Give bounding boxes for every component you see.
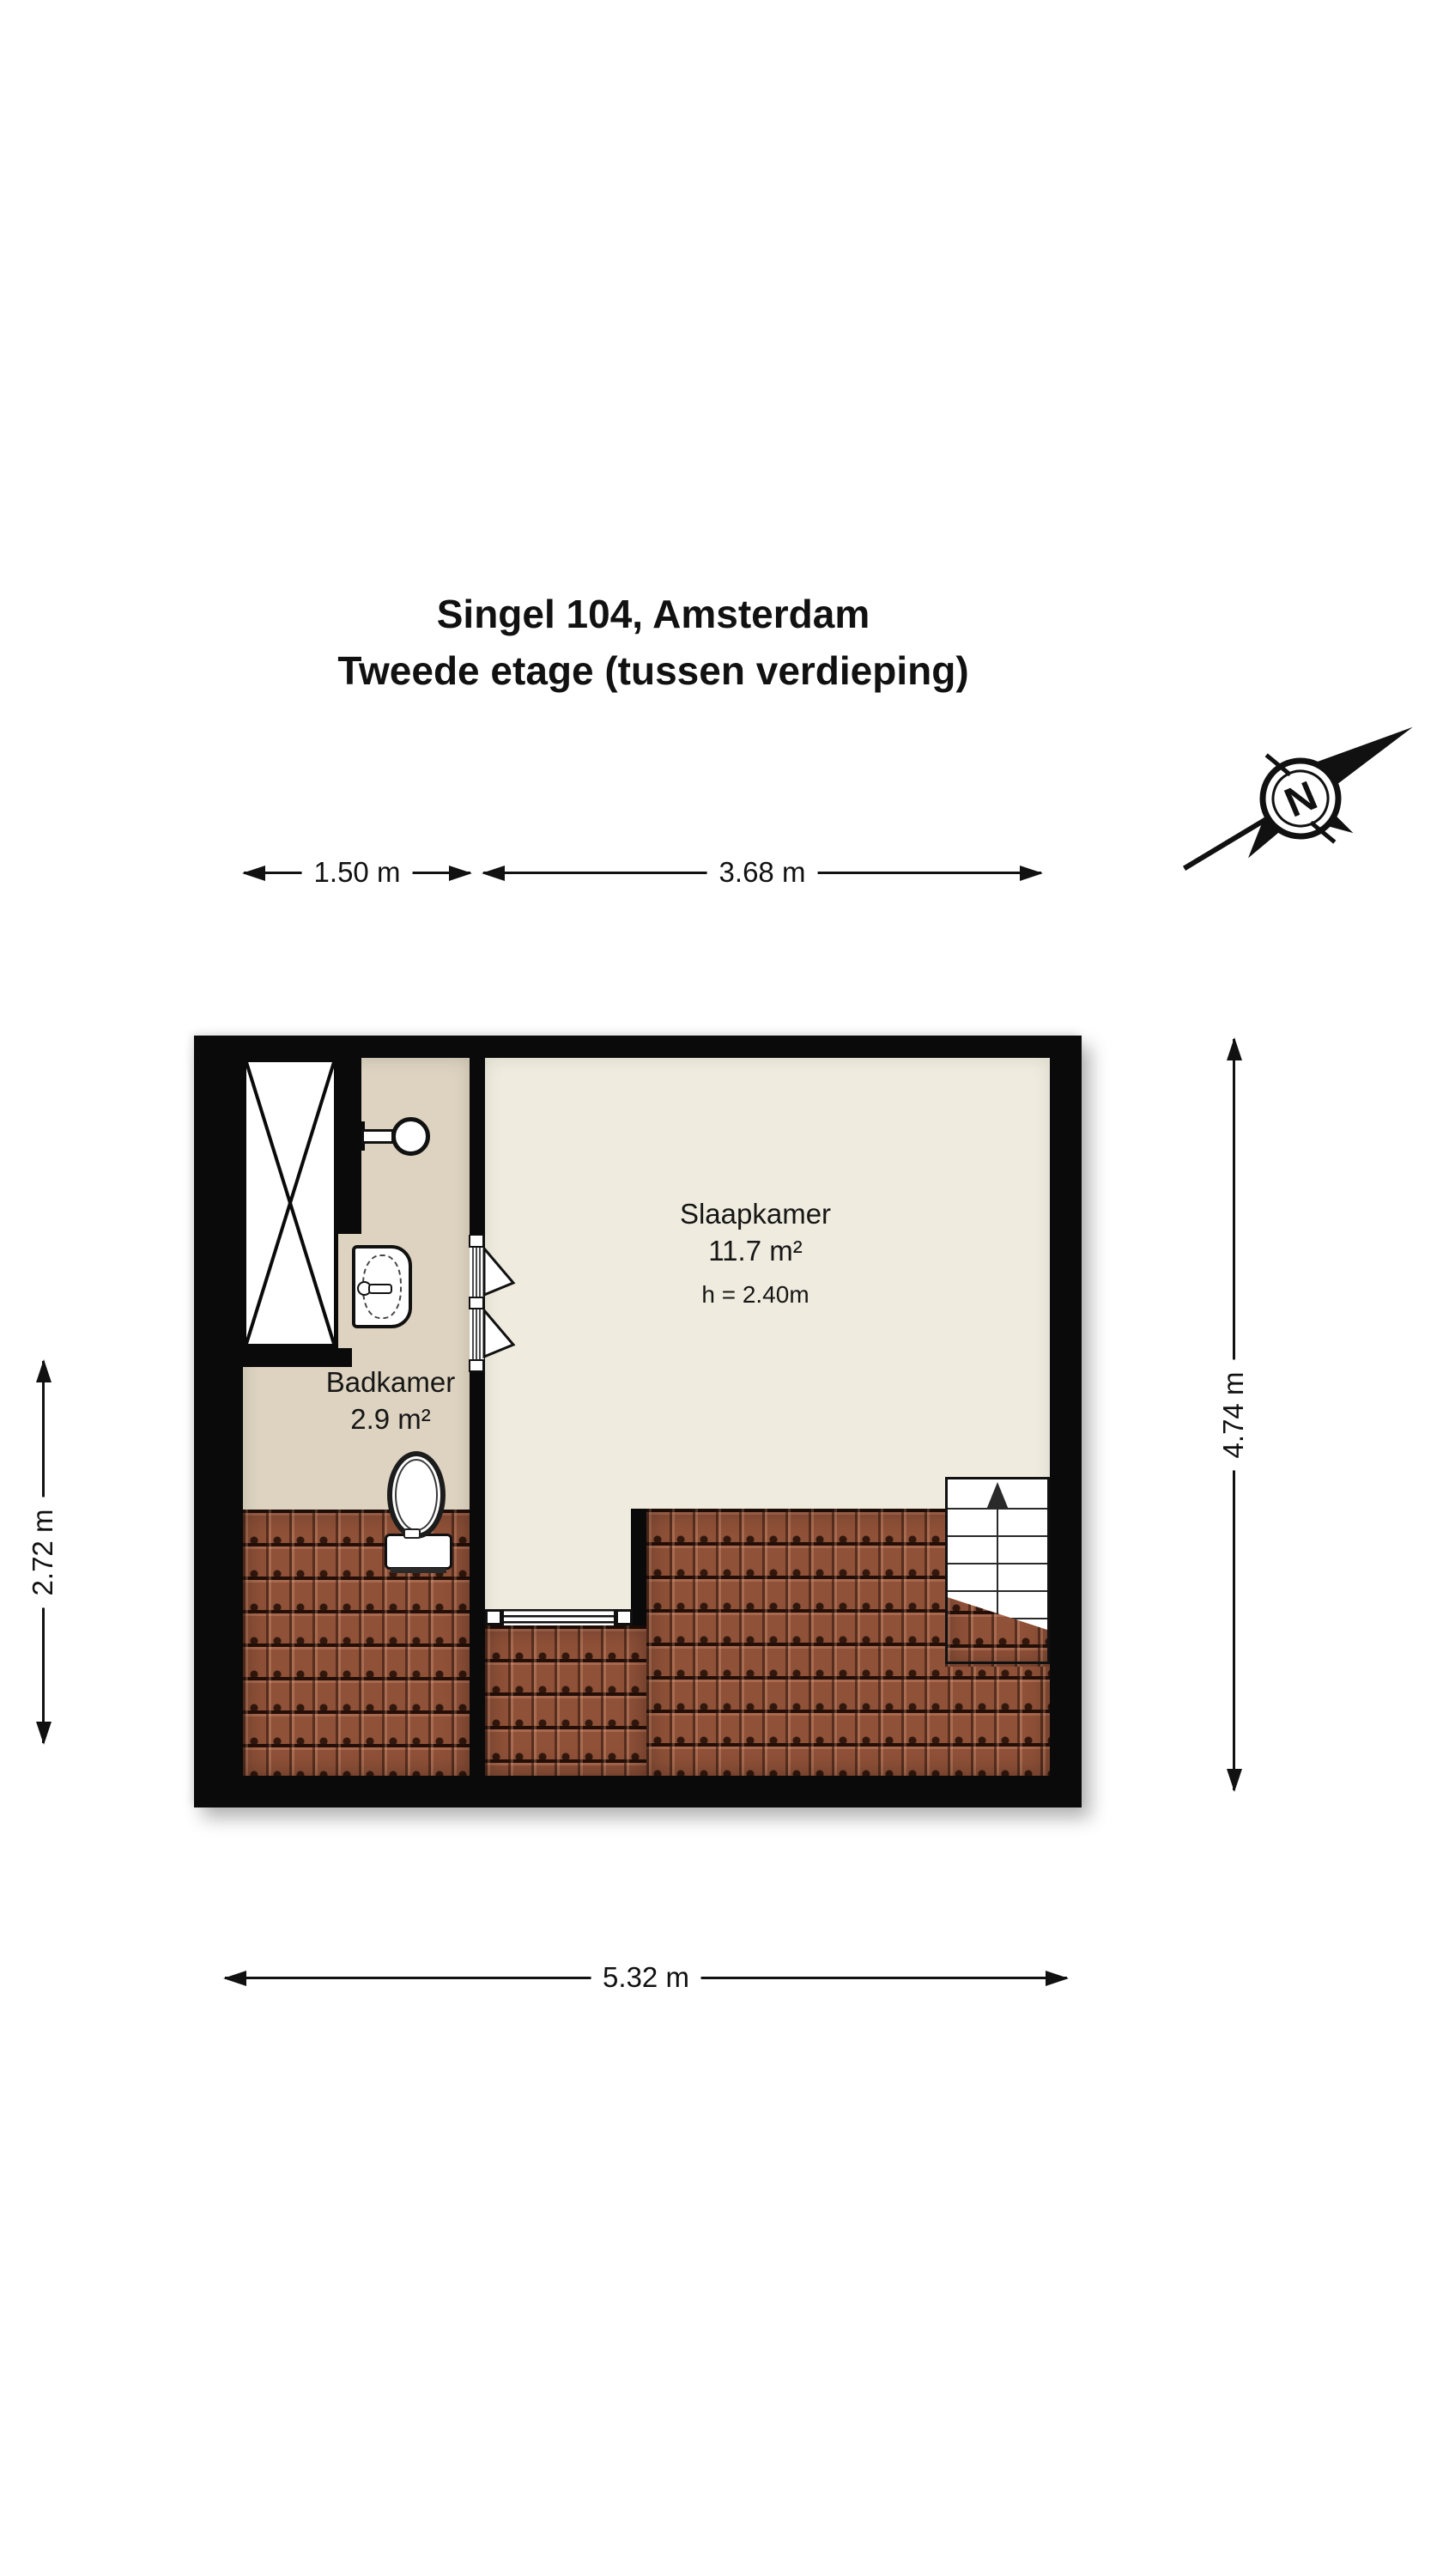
louvre-door [469,1235,524,1372]
room-area: 11.7 m² [635,1232,876,1269]
dimension-value: 1.50 m [302,856,413,889]
arrow-left-icon [482,866,505,881]
toilet-hinge [403,1528,421,1539]
arrow-up-icon [1227,1037,1242,1060]
arrow-left-icon [223,1971,246,1986]
dimension-top-bathroom: 1.50 m [244,860,470,884]
title-floor: Tweede etage (tussen verdieping) [209,642,1097,699]
room-area: 2.9 m² [283,1400,498,1437]
arrow-down-icon [1227,1769,1242,1792]
dimension-value: 5.32 m [591,1961,701,1994]
dimension-value: 4.74 m [1217,1359,1250,1470]
stairs-outline [945,1477,1050,1664]
shower [242,1058,338,1348]
roof-tiles-bedroom-below-window [485,1625,646,1776]
door-swing [484,1310,513,1357]
bedroom-label: Slaapkamer 11.7 m² h = 2.40m [635,1195,876,1313]
toilet-tank [385,1534,452,1570]
dimension-bottom-width: 5.32 m [225,1965,1067,1990]
room-name: Slaapkamer [635,1195,876,1232]
toilet-bowl [387,1451,446,1539]
dormer-window [502,1609,615,1625]
page-title: Singel 104, Amsterdam Tweede etage (tuss… [209,586,1097,699]
compass-rose-icon: N [1155,683,1438,902]
wall-basin [391,1117,430,1156]
washbasin [352,1245,412,1328]
arrow-right-icon [449,866,472,881]
door-swing [484,1249,513,1295]
arrow-left-icon [242,866,265,881]
room-name: Badkamer [283,1364,498,1400]
dimension-value: 2.72 m [27,1497,59,1607]
dimension-left-height: 2.72 m [31,1361,57,1743]
toilet-base [391,1568,446,1573]
arrow-right-icon [1046,1971,1069,1986]
dormer-side-wall [631,1509,646,1625]
arrow-down-icon [36,1722,52,1745]
window-end-block [615,1609,633,1625]
title-address: Singel 104, Amsterdam [209,586,1097,642]
arrow-up-icon [36,1359,52,1382]
bathroom-label: Badkamer 2.9 m² [283,1364,498,1437]
dimension-top-bedroom: 3.68 m [483,860,1041,884]
dimension-value: 3.68 m [707,856,818,889]
room-ceiling-height: h = 2.40m [635,1276,876,1313]
faucet-lever [368,1284,392,1294]
arrow-right-icon [1020,866,1043,881]
window-end-block [485,1609,502,1625]
toilet-seat [395,1459,438,1531]
dimension-right-height: 4.74 m [1222,1039,1247,1790]
floorplan-page: Singel 104, Amsterdam Tweede etage (tuss… [0,0,1449,2576]
wall-basin-stem [361,1129,394,1144]
